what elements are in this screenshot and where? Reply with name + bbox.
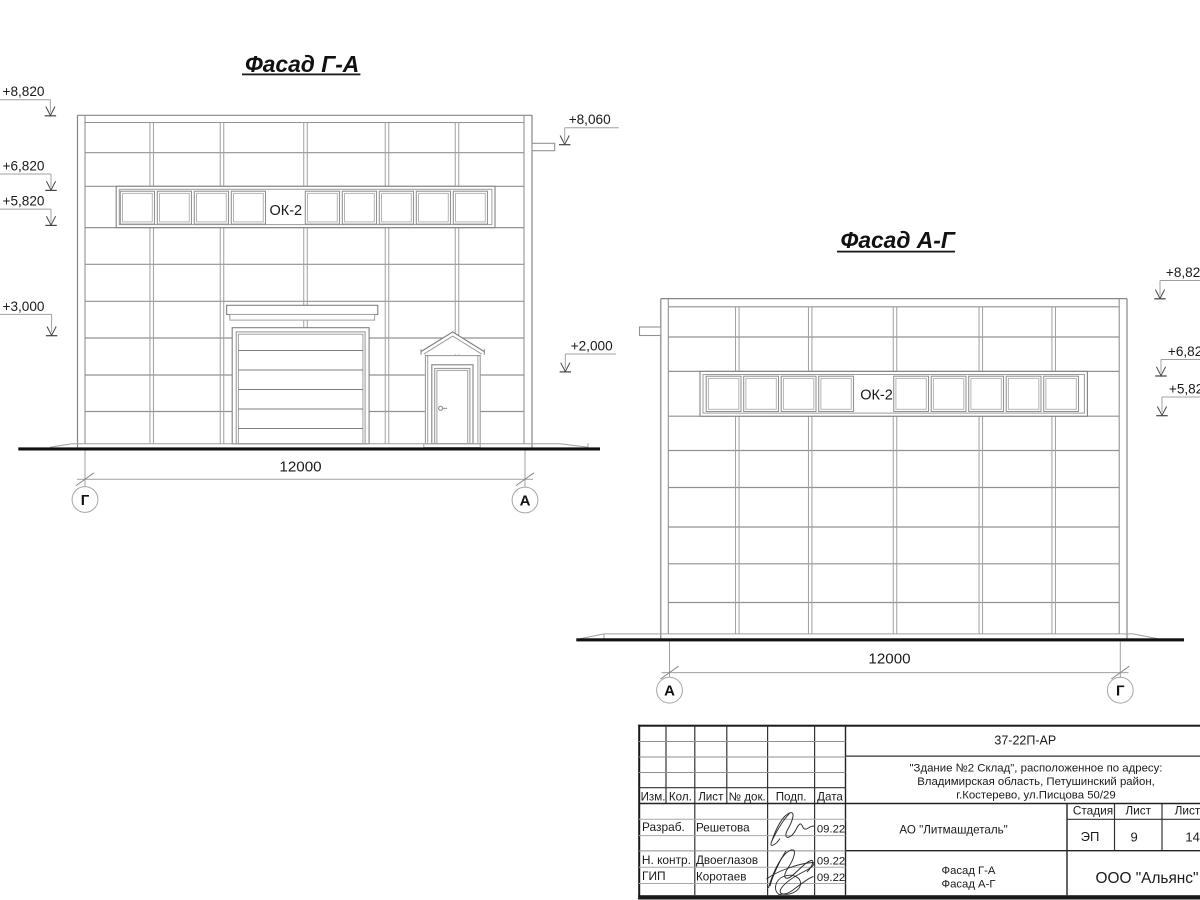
svg-text:Разраб.: Разраб. [642, 820, 685, 834]
svg-text:12000: 12000 [868, 651, 910, 668]
svg-text:09.22: 09.22 [817, 823, 845, 835]
svg-text:ЭП: ЭП [1081, 829, 1100, 844]
svg-text:Коротаев: Коротаев [696, 870, 746, 883]
svg-text:Двоеглазов: Двоеглазов [696, 854, 758, 867]
svg-text:Г: Г [81, 492, 90, 509]
svg-text:г.Костерево, ул.Писцова 50/29: г.Костерево, ул.Писцова 50/29 [956, 789, 1115, 801]
svg-text:ГИП: ГИП [642, 869, 666, 883]
svg-text:+8,820: +8,820 [3, 84, 45, 99]
svg-text:+8,060: +8,060 [569, 112, 611, 127]
svg-text:№ док.: № док. [729, 790, 766, 803]
svg-text:Лист: Лист [1125, 804, 1151, 818]
svg-text:Фасад Г-А: Фасад Г-А [245, 51, 359, 77]
svg-text:ОК-2: ОК-2 [860, 387, 893, 403]
svg-text:Кол.: Кол. [669, 790, 692, 803]
svg-text:09.22: 09.22 [817, 855, 845, 867]
svg-text:Изм.: Изм. [641, 790, 666, 803]
svg-text:Дата: Дата [817, 790, 843, 803]
svg-text:ООО "Альянс": ООО "Альянс" [1096, 870, 1199, 887]
svg-text:"Здание №2 Склад", расположенн: "Здание №2 Склад", расположенное по адре… [910, 763, 1163, 775]
svg-text:14: 14 [1185, 829, 1199, 844]
svg-text:+6,820: +6,820 [1168, 344, 1200, 359]
svg-text:+5,820: +5,820 [3, 194, 45, 209]
svg-text:Фасад А-Г: Фасад А-Г [841, 227, 956, 253]
svg-text:ОК-2: ОК-2 [269, 203, 302, 219]
svg-text:АО "Литмашдеталь": АО "Литмашдеталь" [899, 824, 1007, 837]
svg-text:12000: 12000 [279, 459, 321, 476]
svg-text:09.22: 09.22 [817, 872, 845, 884]
svg-text:А: А [664, 683, 675, 700]
svg-text:37-22П-АР: 37-22П-АР [994, 734, 1056, 748]
svg-text:+3,000: +3,000 [3, 299, 45, 314]
svg-text:Листов: Листов [1175, 804, 1200, 818]
svg-text:+8,820: +8,820 [1166, 265, 1200, 280]
svg-text:Фасад А-Г: Фасад А-Г [942, 878, 996, 890]
svg-text:Г: Г [1116, 683, 1125, 700]
svg-text:Лист: Лист [698, 790, 724, 803]
svg-text:А: А [520, 493, 531, 510]
svg-text:+2,000: +2,000 [571, 339, 613, 354]
svg-text:Н. контр.: Н. контр. [642, 853, 691, 867]
svg-text:+6,820: +6,820 [3, 159, 45, 174]
svg-text:Владимирская область, Петушинс: Владимирская область, Петушинский район, [917, 776, 1155, 788]
svg-text:Решетова: Решетова [696, 822, 750, 835]
svg-text:9: 9 [1130, 829, 1137, 844]
svg-text:Стадия: Стадия [1073, 804, 1113, 818]
svg-text:Фасад Г-А: Фасад Г-А [942, 865, 996, 877]
svg-text:Подп.: Подп. [776, 790, 807, 803]
svg-text:+5,820: +5,820 [1169, 382, 1200, 397]
